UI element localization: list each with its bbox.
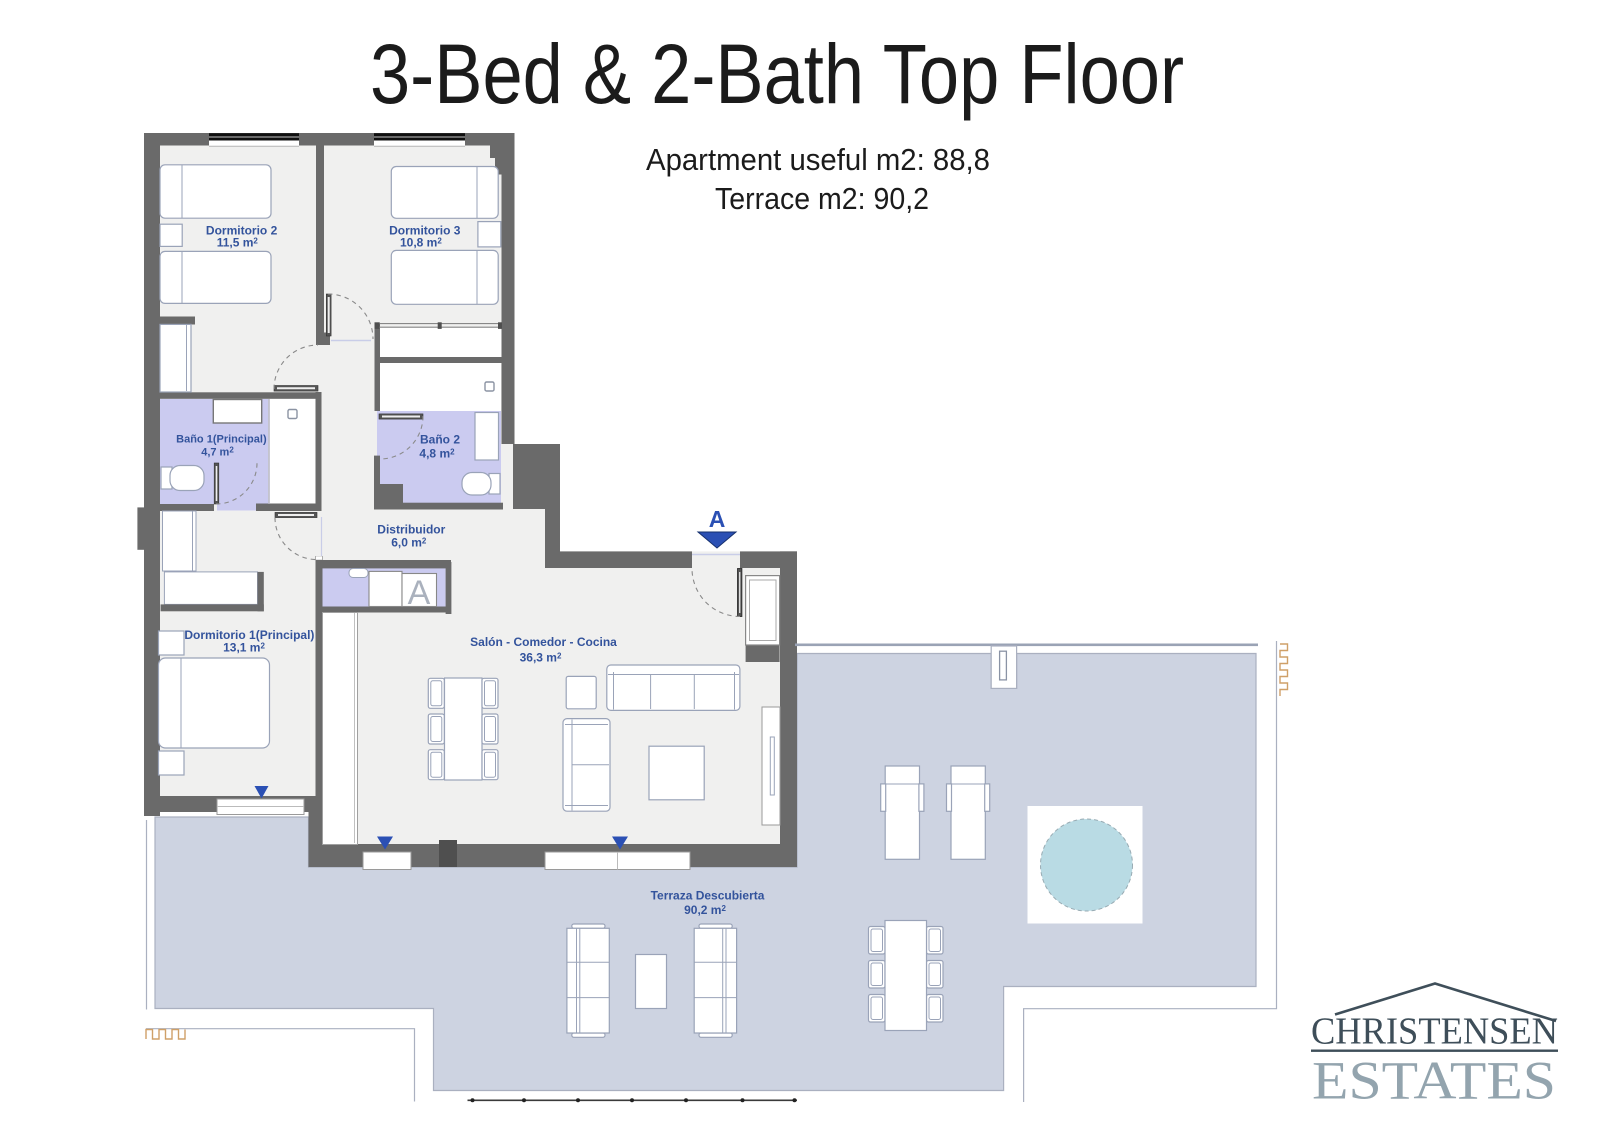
- svg-text:ESTATES: ESTATES: [1312, 1051, 1556, 1111]
- svg-text:36,3 m2: 36,3 m2: [520, 651, 562, 665]
- svg-text:10,8 m2: 10,8 m2: [400, 236, 442, 250]
- svg-text:6,0 m2: 6,0 m2: [391, 536, 427, 550]
- svg-text:CHRISTENSEN: CHRISTENSEN: [1311, 1011, 1558, 1053]
- svg-text:Apartment useful m2: 88,8: Apartment useful m2: 88,8: [646, 142, 990, 177]
- svg-text:Baño 1(Principal): Baño 1(Principal): [176, 434, 267, 446]
- svg-text:90,2 m2: 90,2 m2: [684, 903, 726, 917]
- svg-text:Salón - Comedor - Cocina: Salón - Comedor - Cocina: [470, 635, 617, 649]
- svg-text:Baño 2: Baño 2: [420, 433, 460, 447]
- svg-text:3-Bed & 2-Bath Top Floor: 3-Bed & 2-Bath Top Floor: [370, 27, 1184, 121]
- svg-text:13,1 m2: 13,1 m2: [223, 641, 265, 655]
- svg-text:4,8 m2: 4,8 m2: [419, 447, 455, 461]
- svg-text:Terrace m2: 90,2: Terrace m2: 90,2: [715, 181, 929, 216]
- svg-text:A: A: [408, 574, 431, 612]
- svg-text:Distribuidor: Distribuidor: [377, 523, 445, 537]
- svg-text:A: A: [709, 506, 726, 532]
- svg-text:11,5 m2: 11,5 m2: [217, 236, 259, 250]
- svg-text:Terraza Descubierta: Terraza Descubierta: [651, 889, 765, 903]
